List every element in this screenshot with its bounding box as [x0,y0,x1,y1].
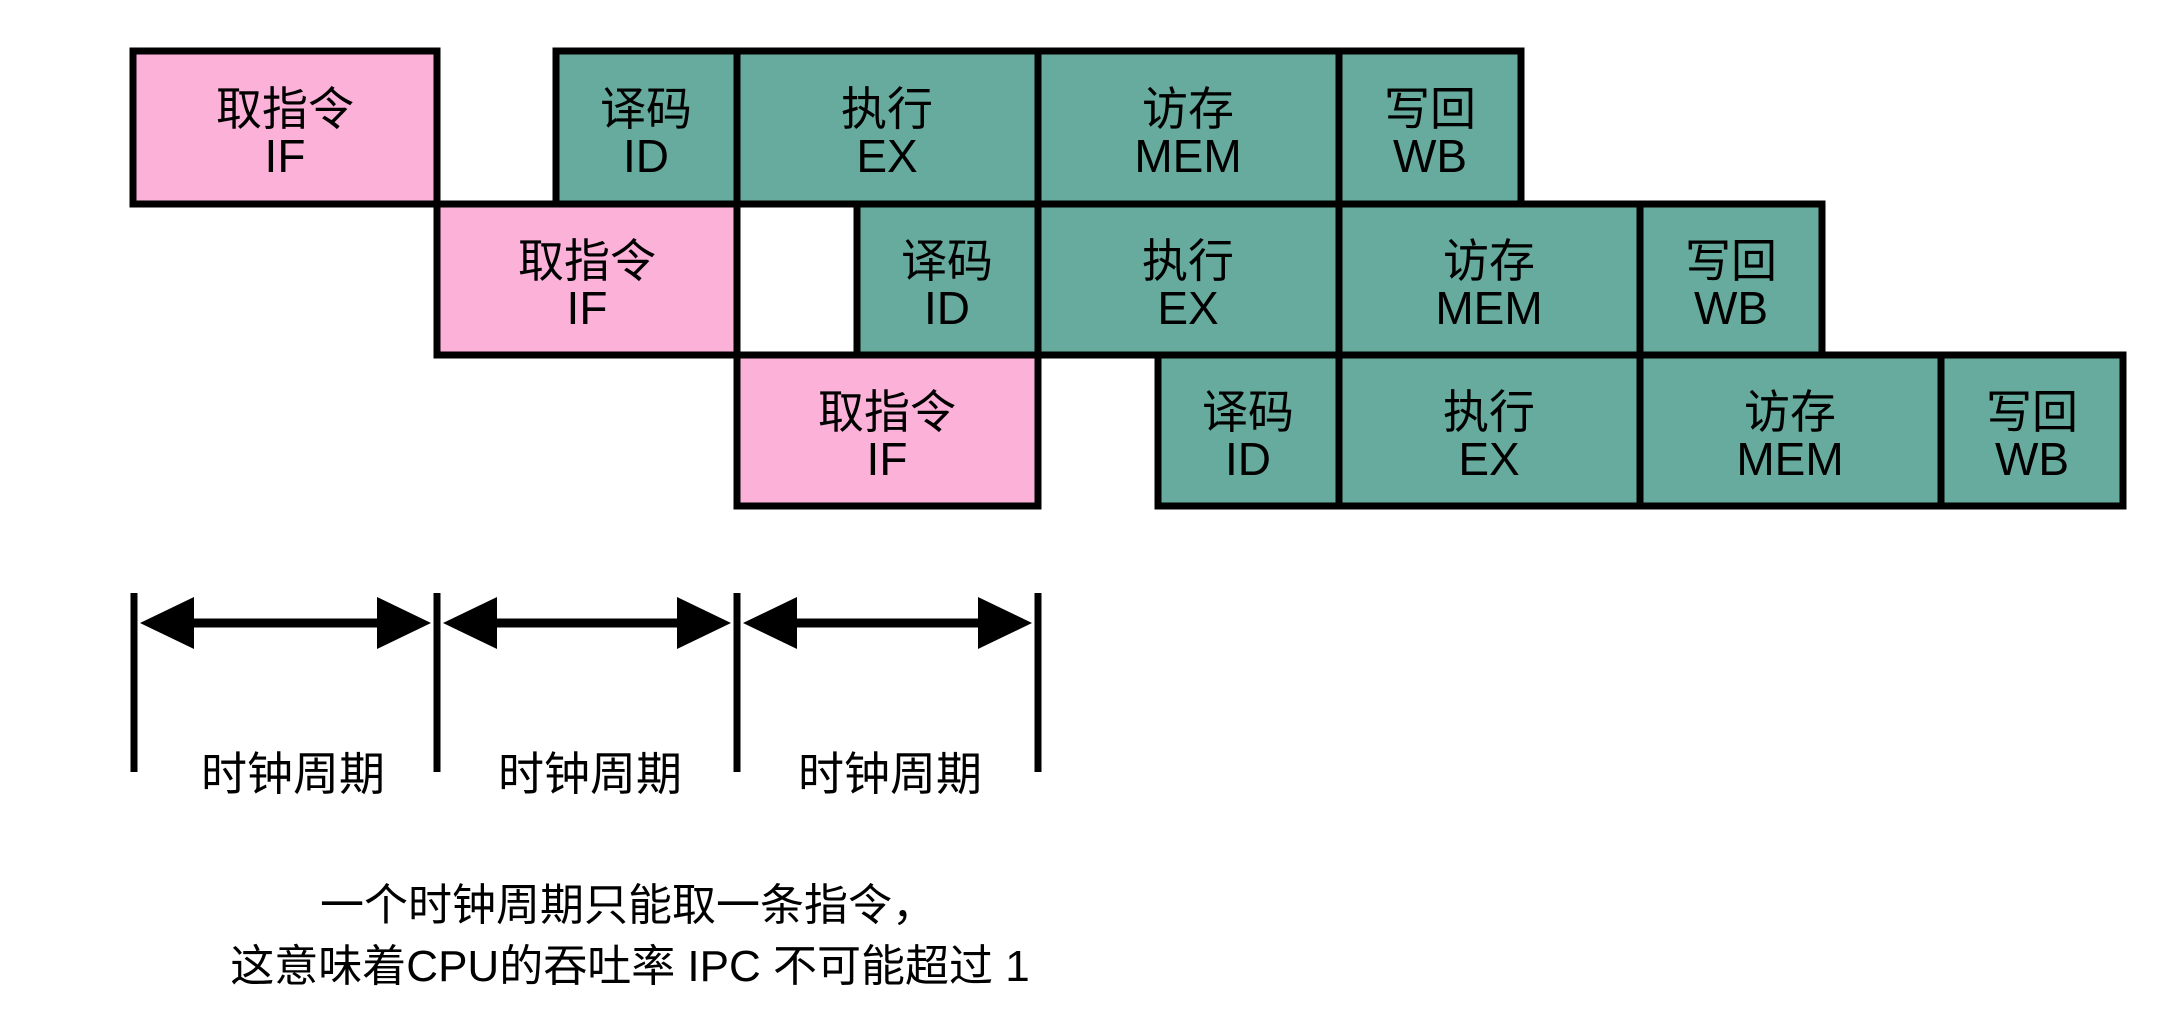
stage-label-en: IF [265,130,306,182]
stage-mem-row3: 访存 MEM [1640,355,1941,506]
stage-label-zh: 写回 [1384,83,1476,135]
double-arrow-1 [140,597,431,649]
stage-id-row1: 译码 ID [556,51,737,204]
stage-mem-row1: 访存 MEM [1038,51,1339,204]
stage-label-zh: 写回 [1986,386,2078,438]
double-arrow-2 [443,597,731,649]
arrowhead-left-icon [443,597,497,649]
pipeline-row-2: 取指令 IF 译码 ID 执行 EX 访存 MEM 写回 WB [437,204,1822,355]
stage-label-zh: 执行 [1443,386,1535,438]
stage-if-row1: 取指令 IF [133,51,437,204]
cpu-pipeline-diagram: 取指令 IF 译码 ID 执行 EX 访存 MEM 写回 WB 取指令 IF [0,0,2173,1018]
caption-line-1: 一个时钟周期只能取一条指令， [320,881,936,930]
stage-label-en: IF [567,282,608,334]
stage-if-row3: 取指令 IF [737,355,1038,506]
cycle-label-3: 时钟周期 [798,748,982,800]
stage-label-zh: 译码 [901,235,993,287]
stage-ex-row1: 执行 EX [737,51,1038,204]
stage-label-zh: 取指令 [818,386,956,438]
caption: 一个时钟周期只能取一条指令， 这意味着CPU的吞吐率 IPC 不可能超过 1 [230,881,1029,991]
stage-label-en: EX [1458,433,1519,485]
stage-label-en: WB [1995,433,2069,485]
stage-label-zh: 取指令 [518,235,656,287]
arrowhead-left-icon [140,597,194,649]
stage-label-en: ID [1225,433,1271,485]
cycle-label-1: 时钟周期 [201,748,385,800]
pipeline-row-3: 取指令 IF 译码 ID 执行 EX 访存 MEM 写回 WB [737,355,2123,506]
cycle-label-2: 时钟周期 [498,748,682,800]
stage-label-en: IF [867,433,908,485]
stage-label-zh: 写回 [1685,235,1777,287]
stage-label-en: EX [856,130,917,182]
caption-line-2: 这意味着CPU的吞吐率 IPC 不可能超过 1 [230,942,1029,991]
stage-label-en: MEM [1134,130,1241,182]
clock-cycle-timeline: 时钟周期 时钟周期 时钟周期 [134,593,1038,800]
stage-wb-row2: 写回 WB [1640,204,1822,355]
stage-label-zh: 访存 [1744,386,1836,438]
stage-label-en: MEM [1736,433,1843,485]
stage-label-zh: 译码 [600,83,692,135]
arrowhead-right-icon [677,597,731,649]
arrowhead-right-icon [377,597,431,649]
stage-id-row2: 译码 ID [857,204,1038,355]
stage-label-zh: 取指令 [216,83,354,135]
stage-label-en: ID [623,130,669,182]
stage-wb-row1: 写回 WB [1339,51,1521,204]
pipeline-row-1: 取指令 IF 译码 ID 执行 EX 访存 MEM 写回 WB [133,51,1521,204]
stage-label-en: ID [924,282,970,334]
stage-label-en: WB [1393,130,1467,182]
stage-label-zh: 译码 [1202,386,1294,438]
arrowhead-left-icon [743,597,797,649]
double-arrow-3 [743,597,1032,649]
stage-label-zh: 访存 [1443,235,1535,287]
stage-label-zh: 执行 [841,83,933,135]
stage-ex-row3: 执行 EX [1339,355,1640,506]
stage-mem-row2: 访存 MEM [1339,204,1640,355]
stage-label-zh: 执行 [1142,235,1234,287]
stage-ex-row2: 执行 EX [1038,204,1339,355]
stage-label-en: WB [1694,282,1768,334]
arrowhead-right-icon [978,597,1032,649]
stage-label-en: EX [1157,282,1218,334]
stage-label-en: MEM [1435,282,1542,334]
stage-id-row3: 译码 ID [1158,355,1339,506]
stage-label-zh: 访存 [1142,83,1234,135]
stage-wb-row3: 写回 WB [1941,355,2123,506]
stage-if-row2: 取指令 IF [437,204,737,355]
